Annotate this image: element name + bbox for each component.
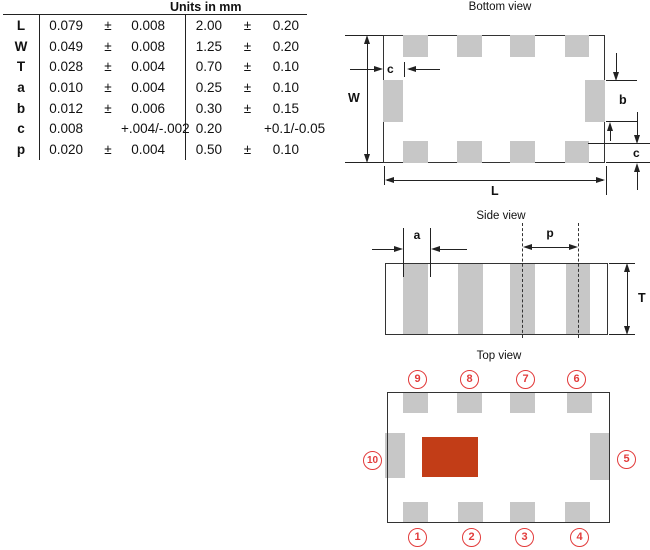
row-label: a — [3, 80, 39, 95]
dim-label-p: p — [522, 226, 578, 240]
mm-tolerance: 0.15 — [264, 101, 310, 116]
arrowhead-right — [569, 244, 578, 250]
dim-tick — [404, 62, 405, 77]
pin-number-badge: 1 — [408, 528, 427, 547]
bottom-view-pad — [510, 141, 535, 163]
dim-line-a — [372, 249, 394, 250]
dim-label-L: L — [491, 184, 499, 198]
pin-number-badge: 3 — [515, 528, 534, 547]
row-label: L — [3, 18, 39, 33]
pin1-marking — [422, 437, 478, 477]
bottom-view-pad-right — [585, 80, 605, 122]
arrowhead-right — [374, 66, 383, 72]
row-label: p — [3, 142, 39, 157]
inch-tolerance: 0.004 — [121, 80, 185, 95]
dim-extension-line — [609, 334, 635, 335]
dim-line-p — [531, 247, 569, 248]
arrowhead-left — [431, 246, 440, 252]
dim-label-b: b — [619, 93, 627, 107]
inch-tolerance: 0.006 — [121, 101, 185, 116]
bottom-view-pad — [510, 35, 535, 57]
mm-tolerance: 0.10 — [264, 59, 310, 74]
bottom-view-pad — [565, 35, 589, 57]
dim-line-T — [627, 269, 628, 329]
arrowhead-up — [364, 35, 370, 44]
arrowhead-left — [385, 177, 394, 183]
dim-extension-line — [606, 166, 607, 195]
pin-number-badge: 10 — [363, 451, 382, 470]
inch-tolerance: 0.008 — [121, 39, 185, 54]
mm-tolerance: 0.10 — [264, 80, 310, 95]
dim-line-L — [387, 180, 603, 181]
pin-number-badge: 2 — [462, 528, 481, 547]
inch-value: 0.049 — [39, 39, 95, 54]
arrowhead-right — [596, 177, 605, 183]
arrowhead-up — [634, 163, 640, 172]
dim-line — [610, 131, 611, 141]
inch-tolerance: 0.008 — [121, 18, 185, 33]
side-view-title: Side view — [456, 210, 546, 222]
mm-pm: ± — [231, 101, 264, 116]
pin-number-badge: 8 — [460, 370, 479, 389]
inch-value: 0.008 — [39, 121, 95, 136]
pin-number-badge: 9 — [408, 370, 427, 389]
bottom-view-pad — [457, 35, 482, 57]
mm-pm: ± — [231, 80, 264, 95]
top-view-title: Top view — [454, 350, 544, 362]
pin-number-badge: 6 — [567, 370, 586, 389]
arrowhead-up — [607, 122, 613, 131]
arrowhead-down — [634, 135, 640, 144]
mm-tolerance: 0.10 — [264, 142, 310, 157]
dim-label-c-left: c — [387, 62, 394, 76]
dim-label-T: T — [638, 291, 646, 305]
mm-value: 0.25 — [185, 80, 231, 95]
arrowhead-right — [394, 246, 403, 252]
mm-value: 0.50 — [185, 142, 231, 157]
row-label: W — [3, 39, 39, 54]
bottom-view-pad — [403, 141, 428, 163]
inch-pm: ± — [95, 59, 121, 74]
pin-number-badge: 7 — [516, 370, 535, 389]
pin-number-badge: 4 — [570, 528, 589, 547]
bottom-view-pad — [565, 141, 589, 163]
mm-pm: ± — [231, 18, 264, 33]
arrowhead-up — [624, 263, 630, 272]
arrowhead-down — [364, 154, 370, 163]
dim-label-c-right: c — [633, 146, 640, 160]
dim-line — [637, 172, 638, 190]
inch-tolerance: 0.004 — [121, 142, 185, 157]
dim-line-b — [616, 53, 617, 72]
row-label: c — [3, 121, 39, 136]
inch-pm: ± — [95, 101, 121, 116]
pin-number-badge: 5 — [617, 450, 636, 469]
bottom-view-pad-left — [383, 80, 403, 122]
dim-extension-line — [606, 80, 637, 81]
dim-label-W: W — [348, 91, 360, 105]
bottom-view-pad — [403, 35, 428, 57]
inch-tolerance: +.004/-.002 — [121, 121, 185, 136]
inch-pm: ± — [95, 142, 121, 157]
arrowhead-down — [613, 72, 619, 81]
dim-line-c-left — [350, 69, 376, 70]
arrowhead-down — [624, 326, 630, 335]
dim-centerline — [522, 223, 523, 338]
dim-line-c-right — [637, 112, 638, 135]
inch-value: 0.010 — [39, 80, 95, 95]
mm-tolerance: 0.20 — [264, 18, 310, 33]
row-label: b — [3, 101, 39, 116]
mm-value: 1.25 — [185, 39, 231, 54]
mm-value: 0.20 — [185, 121, 231, 136]
package-dimension-drawing: Units in mm L 0.079 ± 0.008 2.00 ± 0.20 … — [0, 0, 650, 550]
table-units-header: Units in mm — [170, 0, 242, 14]
row-label: T — [3, 59, 39, 74]
mm-pm: ± — [231, 59, 264, 74]
arrowhead-left — [523, 244, 532, 250]
dim-extension-line — [588, 143, 650, 144]
inch-value: 0.020 — [39, 142, 95, 157]
bottom-view-title: Bottom view — [455, 1, 545, 13]
table-grid: L 0.079 ± 0.008 2.00 ± 0.20 W 0.049 ± 0.… — [3, 15, 310, 160]
top-view-body — [387, 392, 610, 523]
mm-pm: ± — [231, 39, 264, 54]
mm-tolerance: +0.1/-0.05 — [264, 121, 310, 136]
mm-value: 0.70 — [185, 59, 231, 74]
dim-line-a — [439, 249, 467, 250]
arrowhead-left — [407, 66, 416, 72]
inch-value: 0.079 — [39, 18, 95, 33]
dim-label-a: a — [403, 228, 431, 242]
inch-value: 0.012 — [39, 101, 95, 116]
dim-extension-line — [609, 263, 635, 264]
dim-line-W — [367, 41, 368, 157]
mm-tolerance: 0.20 — [264, 39, 310, 54]
inch-pm: ± — [95, 18, 121, 33]
inch-value: 0.028 — [39, 59, 95, 74]
mm-pm: ± — [231, 142, 264, 157]
inch-tolerance: 0.004 — [121, 59, 185, 74]
dim-extension-line — [606, 162, 650, 163]
bottom-view-pad — [457, 141, 482, 163]
mm-value: 0.30 — [185, 101, 231, 116]
dim-centerline — [578, 223, 579, 338]
inch-pm: ± — [95, 80, 121, 95]
side-view-body — [385, 263, 608, 335]
mm-value: 2.00 — [185, 18, 231, 33]
inch-pm: ± — [95, 39, 121, 54]
